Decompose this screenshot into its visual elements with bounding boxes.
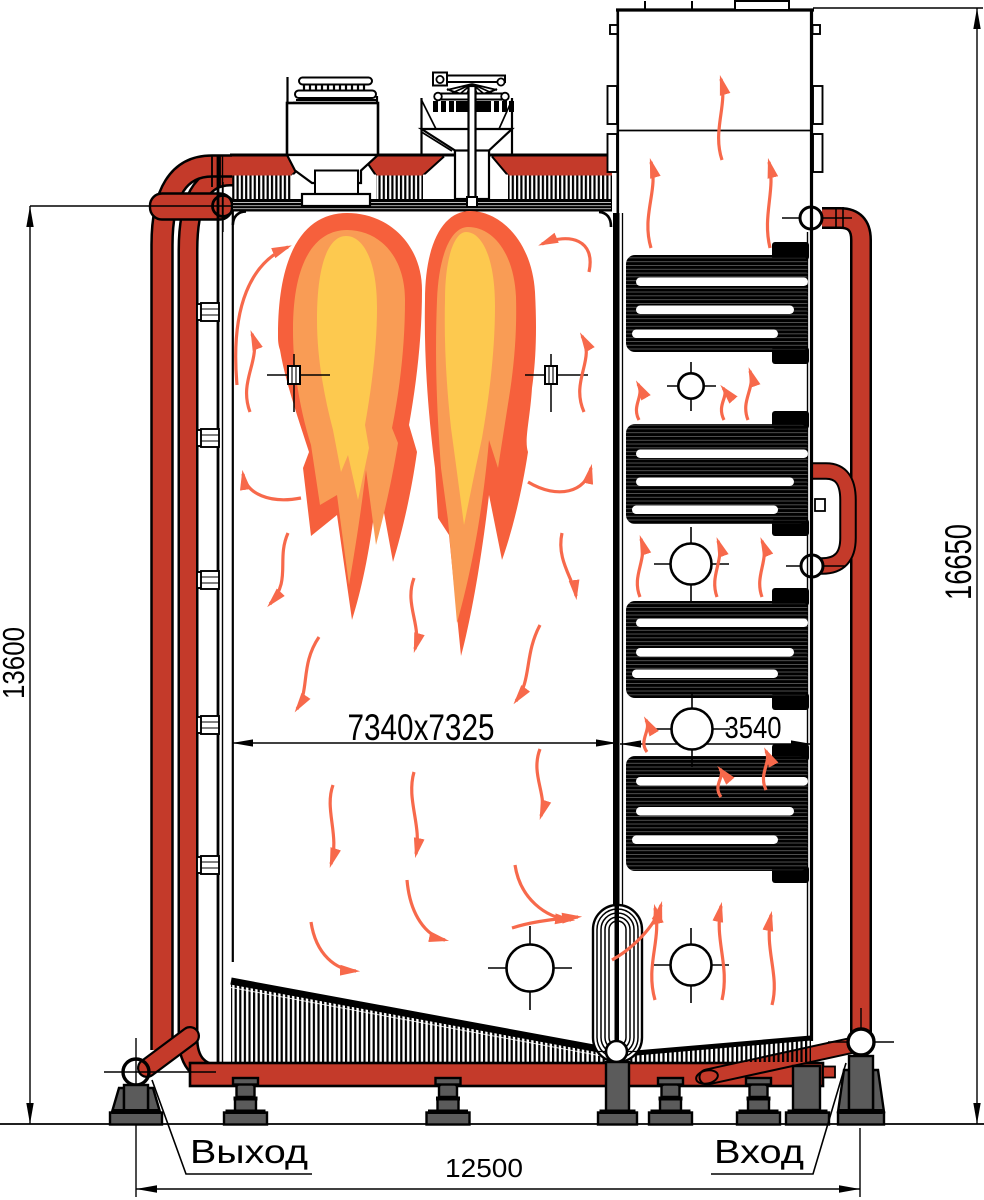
svg-text:16650: 16650 <box>938 524 979 600</box>
svg-text:13600: 13600 <box>0 627 31 699</box>
svg-text:12500: 12500 <box>445 1153 523 1183</box>
svg-text:Вход: Вход <box>714 1133 804 1170</box>
svg-text:7340x7325: 7340x7325 <box>348 706 495 748</box>
svg-text:Выход: Выход <box>190 1133 308 1170</box>
svg-text:3540: 3540 <box>725 710 782 745</box>
